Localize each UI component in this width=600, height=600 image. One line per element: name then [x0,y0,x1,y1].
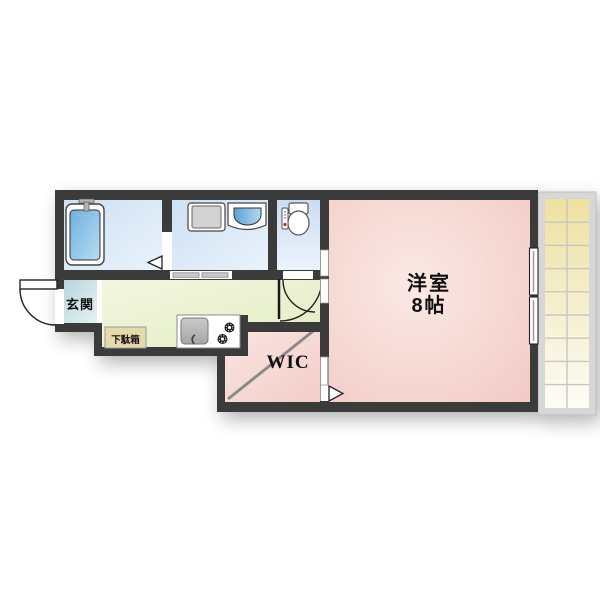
stove-burner-top [225,323,235,333]
entrance-door-leaf [20,280,57,289]
wall-top [55,190,538,200]
wall-wic-top [248,322,329,332]
mainroom-wall-opening-lower [321,279,329,303]
kitchen-sink [181,318,208,344]
western-room-floor [329,200,530,402]
floorplan-canvas: 洋室 8帖 WIC 玄関 下駄箱 [0,0,600,600]
wall-counter-right [240,315,248,356]
wash-basin-bowl [234,208,261,225]
mainroom-wall-opening-upper [321,250,329,276]
bathtub-faucet-stem-icon [84,202,89,211]
entrance-door-opening [55,289,64,324]
toilet-door-opening [283,271,313,279]
toilet-bowl [288,211,309,235]
washroom-sliding-door-panel-right [202,273,228,278]
wall-washroom-toilet [268,190,277,270]
bathroom-door-opening [162,232,172,270]
toilet-control-red-dot [283,223,286,226]
washroom-sliding-door-panel-left [173,273,199,278]
stove-burner-bottom [218,334,228,344]
entrance-door-swing-arc [20,289,56,325]
wall-bottom [217,402,538,412]
entrance-floor [64,280,97,323]
shoe-cabinet [105,327,146,348]
wic-door-panel [321,357,328,385]
bathtub [70,210,100,260]
washer-pan [192,206,221,228]
floorplan-drawing [0,0,600,600]
